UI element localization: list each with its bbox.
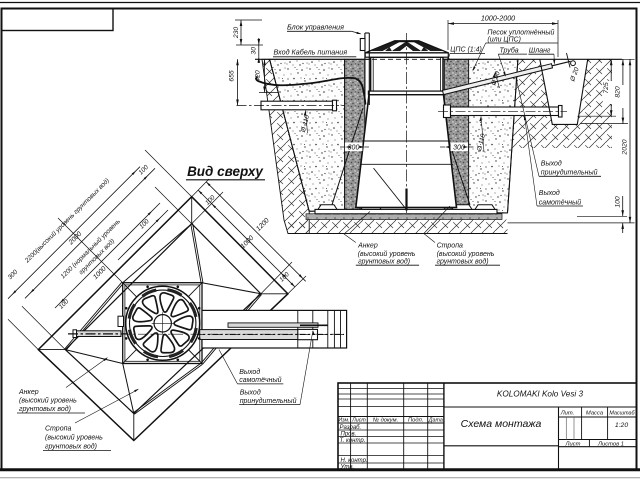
svg-text:Изм.: Изм. bbox=[338, 418, 349, 424]
svg-text:Стропа: Стропа bbox=[437, 243, 463, 250]
svg-text:ЦПС (1:4): ЦПС (1:4) bbox=[450, 47, 482, 54]
svg-text:Выход: Выход bbox=[240, 389, 261, 397]
svg-text:Пров.: Пров. bbox=[341, 432, 357, 438]
svg-text:Выход: Выход bbox=[539, 189, 560, 197]
svg-text:Лит.: Лит. bbox=[560, 411, 575, 417]
svg-text:грунтовых вод): грунтовых вод) bbox=[45, 443, 97, 451]
svg-text:Вход Кабель питания: Вход Кабель питания bbox=[274, 48, 348, 57]
svg-text:Масштаб: Масштаб bbox=[609, 411, 635, 417]
svg-text:Анкер: Анкер bbox=[357, 243, 378, 250]
svg-text:Т. контр.: Т. контр. bbox=[340, 438, 366, 444]
svg-text:Шланг: Шланг bbox=[529, 48, 551, 55]
svg-text:самотёчный: самотёчный bbox=[239, 376, 281, 384]
svg-text:Дата: Дата bbox=[428, 418, 443, 424]
svg-text:Утв.: Утв. bbox=[340, 465, 355, 471]
svg-text:Вид сверху: Вид сверху bbox=[187, 164, 264, 179]
svg-text:230: 230 bbox=[233, 27, 240, 40]
svg-text:принудительный: принудительный bbox=[240, 397, 297, 405]
svg-text:820: 820 bbox=[615, 86, 622, 98]
svg-text:Выход: Выход bbox=[541, 160, 562, 168]
svg-text:(или ЦПС): (или ЦПС) bbox=[487, 37, 521, 44]
svg-text:300: 300 bbox=[348, 145, 360, 152]
svg-text:Выход: Выход bbox=[239, 368, 260, 376]
svg-text:1000-2000: 1000-2000 bbox=[481, 13, 515, 22]
svg-text:(высокий уровень: (высокий уровень bbox=[19, 397, 77, 405]
svg-text:Труба: Труба bbox=[500, 47, 519, 55]
svg-text:Лист: Лист bbox=[351, 418, 366, 424]
svg-text:(высокий уровень: (высокий уровень bbox=[45, 434, 103, 442]
svg-text:655: 655 bbox=[229, 70, 236, 82]
svg-text:1:20: 1:20 bbox=[615, 422, 628, 429]
svg-text:Стропа: Стропа bbox=[45, 426, 71, 433]
svg-text:Песок уплотнённый: Песок уплотнённый bbox=[487, 29, 554, 37]
svg-text:Схема монтажа: Схема монтажа bbox=[461, 418, 542, 430]
svg-text:(высокий уровень: (высокий уровень bbox=[437, 250, 495, 258]
svg-text:грунтовых вод): грунтовых вод) bbox=[358, 258, 410, 266]
svg-text:грунтовых вод): грунтовых вод) bbox=[437, 258, 489, 266]
svg-text:самотёчный: самотёчный bbox=[539, 198, 581, 206]
svg-text:Разраб.: Разраб. bbox=[340, 425, 362, 431]
svg-text:420: 420 bbox=[255, 70, 262, 82]
svg-text:KOLOMAKI Kolo Vesi 3: KOLOMAKI Kolo Vesi 3 bbox=[497, 390, 584, 399]
svg-text:Листов 1: Листов 1 bbox=[597, 441, 624, 447]
svg-text:Н. контр.: Н. контр. bbox=[341, 458, 368, 464]
svg-text:принудительный: принудительный bbox=[541, 169, 598, 177]
svg-text:Подп.: Подп. bbox=[408, 418, 423, 424]
svg-text:30: 30 bbox=[251, 47, 258, 55]
svg-text:(высокий уровень: (высокий уровень bbox=[358, 250, 416, 258]
svg-text:грунтовых вод): грунтовых вод) bbox=[19, 405, 71, 413]
svg-text:№ докум.: № докум. bbox=[373, 418, 399, 424]
svg-text:725: 725 bbox=[603, 82, 610, 94]
svg-text:300: 300 bbox=[453, 145, 465, 152]
svg-text:Масса: Масса bbox=[586, 411, 604, 417]
svg-text:100: 100 bbox=[614, 196, 621, 208]
svg-text:Блок управления: Блок управления bbox=[287, 23, 344, 32]
svg-text:2020: 2020 bbox=[622, 139, 629, 155]
svg-text:Анкер: Анкер bbox=[18, 389, 39, 396]
svg-text:Лист: Лист bbox=[565, 441, 581, 447]
